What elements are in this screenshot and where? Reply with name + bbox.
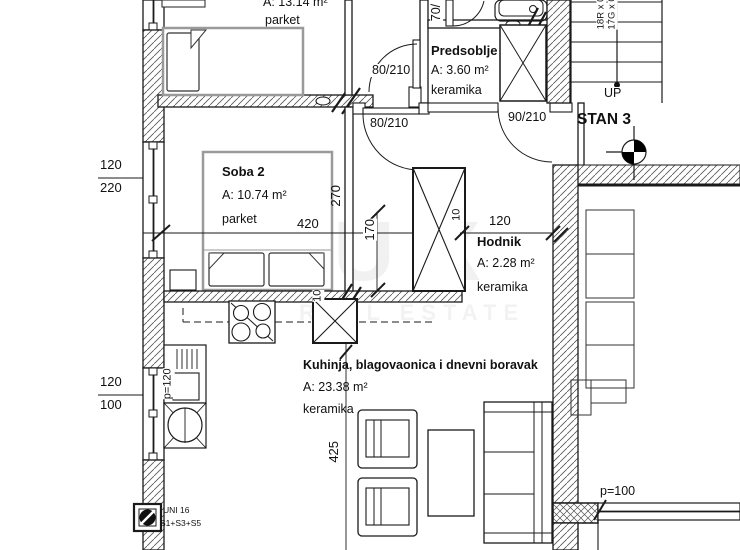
- uni-label-1: UNI 16: [163, 506, 189, 515]
- right-wall-bottom: [553, 523, 578, 550]
- stairs-risers: 18R x 0: [596, 0, 606, 29]
- dim-wall-a: 10: [451, 209, 463, 221]
- parapet-kitchen: p=120: [163, 368, 175, 399]
- window1-height: 220: [100, 181, 122, 195]
- parapet-living: p=100: [600, 485, 635, 498]
- door-label-vestibule: 80/210: [368, 117, 410, 130]
- nightstand: [170, 270, 196, 290]
- soba2-area: A: 10.74 m²: [222, 189, 287, 202]
- dim-living-depth: 425: [327, 441, 341, 463]
- predsoblje-area: A: 3.60 m²: [431, 64, 489, 77]
- soba2-floor: parket: [222, 213, 257, 226]
- stove: [229, 301, 275, 343]
- door-label-bath: 70/: [430, 2, 443, 23]
- soba1-floor: parket: [265, 14, 300, 27]
- kitchen-corner-unit: [164, 403, 206, 448]
- wall-stair-left: [547, 0, 570, 103]
- shaft-hodnik: [413, 168, 465, 291]
- uni-column-symbol: [134, 504, 161, 531]
- coffee-table: [428, 430, 474, 516]
- soba2-name: Soba 2: [222, 165, 265, 179]
- right-wall: [553, 165, 578, 503]
- shaft-predsoblje: [500, 25, 546, 101]
- kuhinja-name: Kuhinja, blagovaonica i dnevni boravak: [303, 359, 538, 372]
- floor-plan: DUX REAL ESTATE: [0, 0, 740, 550]
- armchair-1: [358, 410, 417, 468]
- hodnik-floor: keramika: [477, 281, 528, 294]
- dim-soba2-width: 420: [295, 217, 321, 231]
- door-label-top: 80/210: [370, 64, 412, 77]
- stairs-up-label: UP: [604, 87, 621, 100]
- unit-label: STAN 3: [577, 112, 631, 128]
- shaft-kitchen: [313, 299, 357, 343]
- hodnik-name: Hodnik: [477, 235, 521, 249]
- wall-soba2-right: [345, 107, 353, 293]
- hodnik-area: A: 2.28 m²: [477, 257, 535, 270]
- floor-plan-drawing: [0, 0, 740, 550]
- predsoblje-floor: keramika: [431, 84, 482, 97]
- window1-width: 120: [100, 158, 122, 172]
- uni-label-2: S1+S3+S5: [160, 519, 201, 528]
- armchair-2: [358, 478, 417, 536]
- upper-cabinets-dashed: [183, 308, 432, 322]
- dim-soba2-depth: 270: [329, 185, 343, 207]
- door-vestibule-80210: [353, 103, 429, 170]
- soba1-area: A: 13.14 m²: [263, 0, 328, 9]
- bathtub: [495, 0, 547, 21]
- right-band-wall: [553, 165, 740, 185]
- dim-wall-b: 10: [312, 290, 324, 302]
- dim-leader-lines: [98, 178, 143, 395]
- door-label-predsoblje: 90/210: [506, 111, 548, 124]
- kuhinja-floor: keramika: [303, 403, 354, 416]
- bottom-window: [578, 500, 740, 550]
- window2-width: 120: [100, 375, 122, 389]
- predsoblje-walls: [428, 103, 572, 162]
- sofa: [484, 402, 552, 543]
- stairs-goings: 17G x 0: [608, 0, 618, 30]
- kuhinja-area: A: 23.38 m²: [303, 381, 368, 394]
- corner-block: [553, 503, 598, 523]
- adjacent-furniture: [571, 210, 634, 415]
- dim-hodnik-width: 120: [487, 214, 513, 228]
- dim-strip: 170: [363, 219, 377, 241]
- predsoblje-name: Predsoblje: [431, 44, 497, 58]
- window2-height: 100: [100, 398, 122, 412]
- wall-t1: [345, 0, 352, 95]
- left-wall: [143, 0, 164, 550]
